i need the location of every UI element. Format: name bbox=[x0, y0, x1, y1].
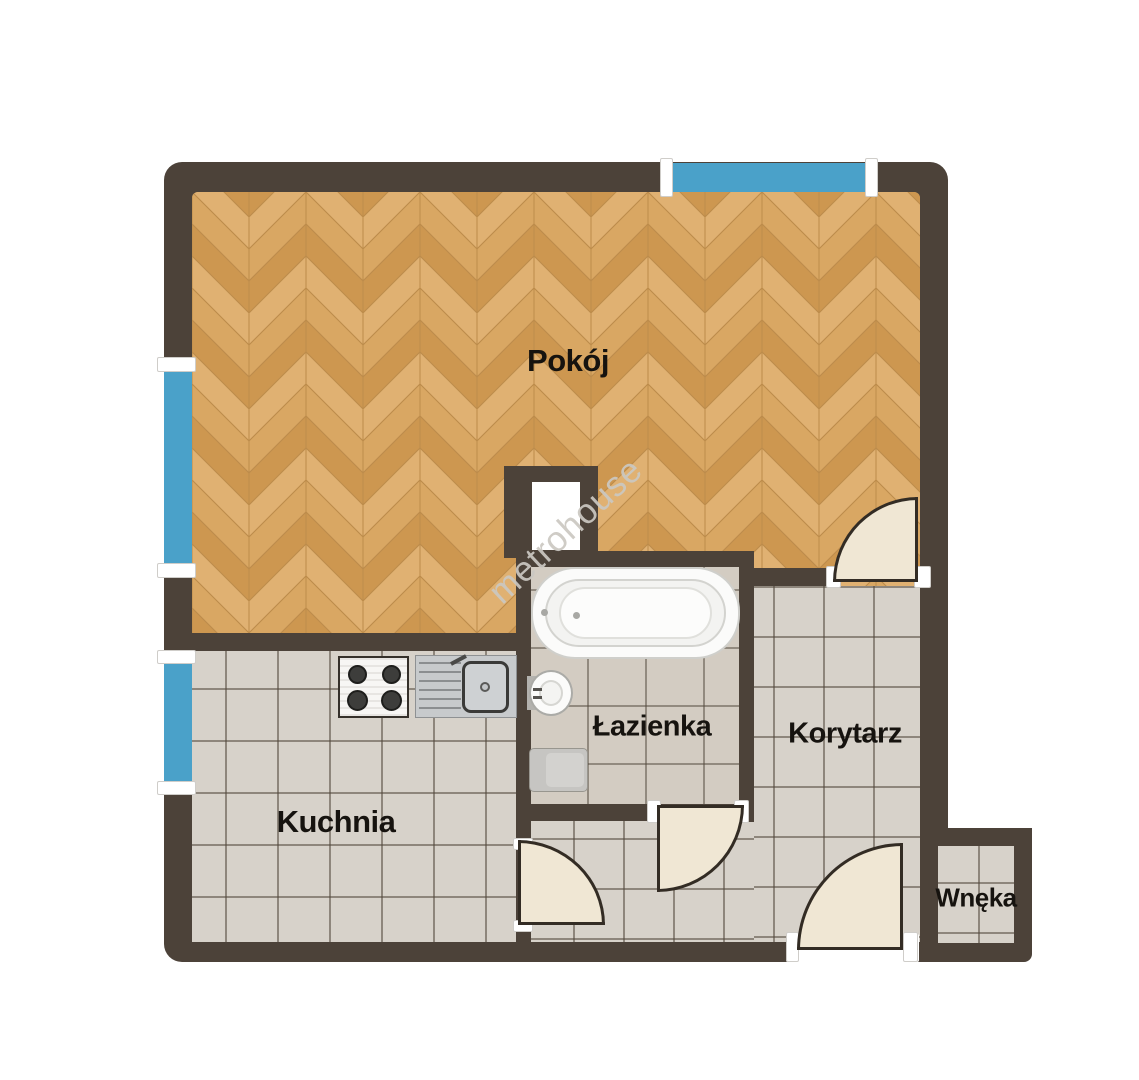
lazienka-label: Łazienka bbox=[593, 711, 712, 744]
stove-burner-icon bbox=[347, 690, 368, 711]
bathtub-faucet-icon bbox=[541, 609, 548, 616]
stove-burner-icon bbox=[348, 665, 367, 684]
window-west-upper bbox=[164, 372, 192, 563]
stove-burner-icon bbox=[382, 665, 401, 684]
toilet-bowl bbox=[546, 753, 584, 787]
bathtub-basin bbox=[559, 587, 712, 639]
window-west-upper-jamb-bottom bbox=[157, 563, 196, 578]
wall-pokoj-korytarz bbox=[754, 568, 836, 586]
window-west-lower-jamb-bottom bbox=[157, 781, 196, 795]
washbasin bbox=[529, 670, 573, 716]
kitchen-sink-unit bbox=[415, 655, 517, 718]
sink-drainer-grooves bbox=[419, 662, 461, 712]
sink-drain-icon bbox=[480, 682, 490, 692]
korytarz-label: Korytarz bbox=[788, 718, 902, 751]
window-west-lower bbox=[164, 664, 192, 781]
washbasin-tap-icon bbox=[533, 688, 542, 691]
wneka-label: Wnęka bbox=[935, 883, 1016, 914]
window-north-jamb-left bbox=[660, 158, 673, 197]
stove-burner-icon bbox=[381, 690, 402, 711]
window-west-lower-jamb-top bbox=[157, 650, 196, 664]
floor-plan: Pokój Kuchnia Łazienka Korytarz Wnęka me… bbox=[0, 0, 1139, 1080]
washbasin-tap-icon-2 bbox=[533, 696, 542, 699]
window-west-upper-jamb-top bbox=[157, 357, 196, 372]
bathtub bbox=[531, 567, 740, 659]
entrance-jamb-right bbox=[903, 932, 918, 962]
wall-bathroom-right bbox=[739, 551, 754, 822]
wall-pokoj-kuchnia bbox=[192, 633, 531, 651]
pokoj-label: Pokój bbox=[527, 343, 609, 379]
gas-stove bbox=[338, 656, 409, 718]
bathtub-drain-icon bbox=[573, 612, 580, 619]
toilet bbox=[529, 748, 588, 792]
wall-bathroom-bottom bbox=[531, 804, 651, 821]
window-north-jamb-right bbox=[865, 158, 878, 197]
washbasin-bowl bbox=[539, 680, 563, 706]
window-north bbox=[673, 163, 865, 192]
kuchnia-label: Kuchnia bbox=[277, 804, 396, 840]
